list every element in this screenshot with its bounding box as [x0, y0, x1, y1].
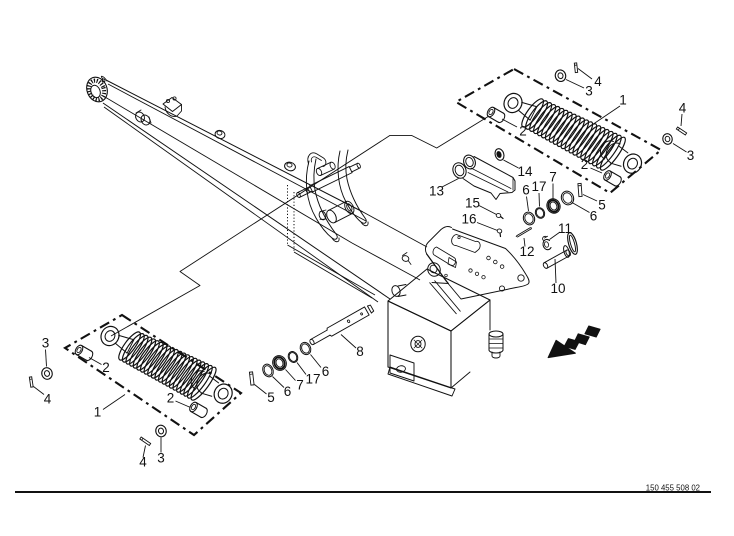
svg-text:4: 4	[594, 74, 602, 89]
svg-text:7: 7	[296, 378, 304, 393]
svg-text:16: 16	[461, 212, 476, 227]
svg-text:4: 4	[139, 455, 147, 470]
svg-text:14: 14	[517, 164, 533, 179]
svg-text:6: 6	[284, 384, 292, 399]
svg-text:1: 1	[619, 93, 627, 108]
svg-text:5: 5	[598, 198, 606, 213]
svg-text:11: 11	[558, 221, 572, 236]
svg-text:2: 2	[102, 360, 110, 375]
svg-text:3: 3	[585, 84, 593, 99]
svg-text:2: 2	[519, 124, 527, 139]
svg-text:6: 6	[590, 209, 598, 224]
svg-text:1: 1	[94, 405, 102, 420]
svg-text:15: 15	[465, 196, 480, 211]
svg-text:3: 3	[687, 148, 695, 163]
svg-text:150 455 508 02: 150 455 508 02	[646, 484, 700, 493]
svg-text:2: 2	[167, 391, 175, 406]
svg-text:13: 13	[429, 184, 444, 199]
svg-text:4: 4	[679, 101, 687, 116]
svg-text:5: 5	[267, 390, 275, 405]
svg-text:6: 6	[322, 364, 330, 379]
svg-text:8: 8	[356, 344, 364, 359]
svg-text:6: 6	[522, 183, 530, 198]
svg-text:2: 2	[581, 157, 589, 172]
svg-text:4: 4	[44, 392, 52, 407]
svg-text:12: 12	[519, 244, 534, 259]
svg-text:3: 3	[157, 451, 165, 466]
svg-text:3: 3	[42, 336, 50, 351]
svg-text:17: 17	[531, 179, 546, 194]
svg-text:17: 17	[305, 372, 320, 387]
svg-text:7: 7	[549, 170, 557, 185]
svg-text:10: 10	[550, 281, 565, 296]
